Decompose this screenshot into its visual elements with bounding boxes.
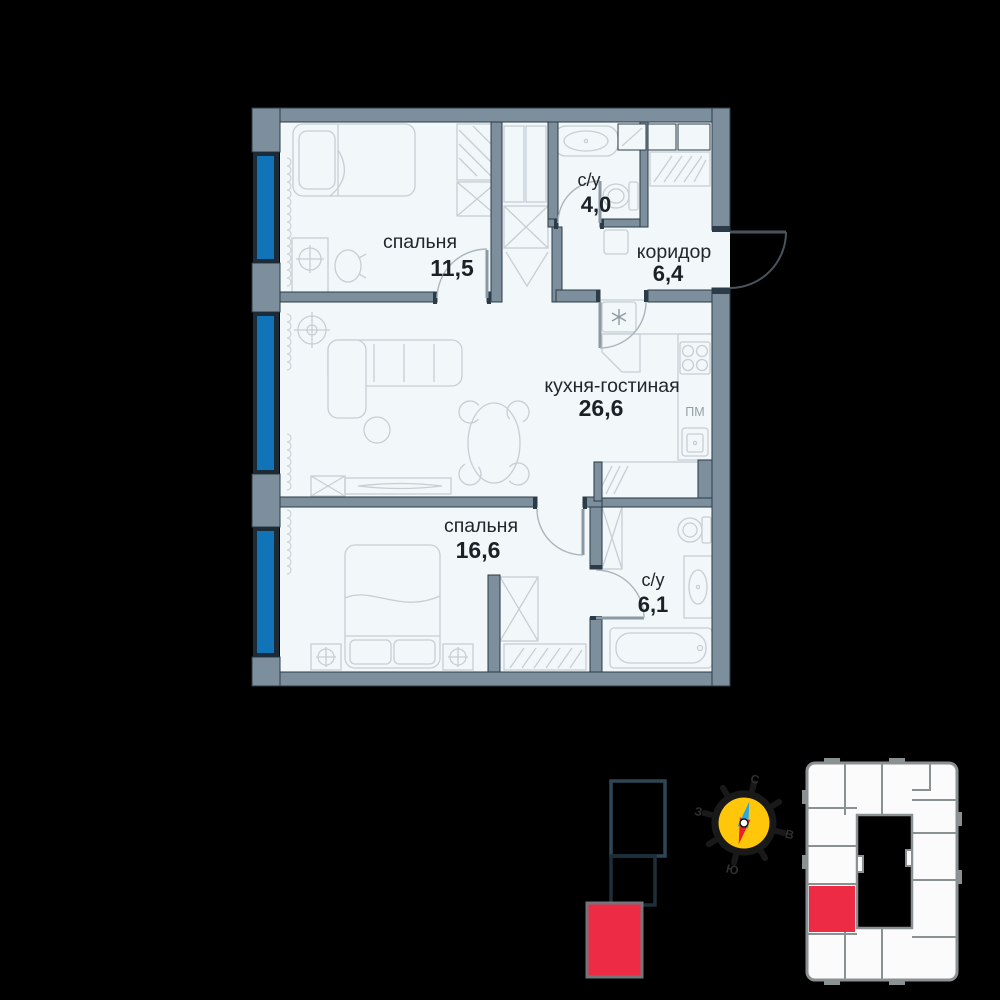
wall-bath1-left: [548, 122, 558, 227]
sofa-chaise: [328, 340, 366, 418]
room-area-bathroom-2: 6,1: [638, 592, 669, 617]
dishwasher-label: ПМ: [685, 405, 704, 419]
wall-right-upper: [712, 108, 730, 230]
window-glazing: [257, 156, 274, 259]
room-label-corridor: коридор: [637, 241, 712, 263]
facade-pier: [252, 263, 280, 312]
entrance-opening: [712, 230, 730, 288]
wall-bedroom2-stub: [488, 575, 500, 672]
wall-bottom: [252, 672, 730, 686]
wall-living-bedroom2: [280, 497, 537, 507]
floor-plate-diagram: [802, 758, 962, 985]
courtyard: [857, 815, 912, 928]
wall-top: [252, 108, 730, 122]
shaft: [648, 124, 676, 150]
room-label-kitchen-living: кухня-гостиная: [544, 375, 679, 397]
room-label-bathroom-2: с/у: [641, 570, 664, 590]
section-highlighted: [587, 903, 642, 977]
compass-north-label: С: [749, 771, 761, 787]
wall-right-lower: [712, 288, 730, 686]
wall-niche-left: [594, 462, 602, 501]
facade-windows: [253, 152, 279, 657]
courtyard-tab: [857, 856, 863, 872]
wall-corridor-kitchen: [556, 290, 600, 302]
room-area-kitchen-living: 26,6: [579, 395, 624, 421]
window-glazing: [257, 531, 274, 653]
section-outline-2: [611, 856, 655, 905]
room-label-bathroom-1: с/у: [577, 170, 600, 190]
wall-bath2-left-upper: [590, 507, 602, 569]
highlighted-unit: [809, 886, 855, 932]
shaft: [678, 124, 710, 150]
room-area-bedroom-2: 16,6: [456, 537, 501, 563]
room-area-bedroom-1: 11,5: [430, 255, 474, 281]
apartment: спальня 11,5 с/у 4,0 коридор 6,4 кухня-г…: [252, 108, 786, 686]
facade-pier: [252, 474, 280, 527]
compass-south-label: Ю: [725, 861, 740, 878]
wall-bedroom1-living: [280, 292, 437, 302]
floorplan-svg: спальня 11,5 с/у 4,0 коридор 6,4 кухня-г…: [0, 0, 1000, 1000]
room-label-bedroom-1: спальня: [383, 231, 457, 253]
facade-pier: [252, 108, 280, 152]
building-section-schematic: [587, 781, 665, 977]
floorplan-image: спальня 11,5 с/у 4,0 коридор 6,4 кухня-г…: [0, 0, 1000, 1000]
room-label-bedroom-2: спальня: [444, 515, 518, 537]
wall-corridor-kitchen: [648, 290, 712, 302]
ventilation-shafts: [618, 124, 710, 150]
wall-bedroom1-hall: [491, 122, 502, 302]
window-glazing: [257, 316, 274, 470]
section-outline-1: [611, 781, 665, 856]
compass-east-label: В: [784, 827, 796, 843]
compass-west-label: З: [693, 804, 704, 819]
room-area-corridor: 6,4: [653, 261, 684, 286]
room-area-bathroom-1: 4,0: [581, 192, 612, 217]
wall-bath2-left-lower: [590, 618, 602, 672]
courtyard-tab: [906, 850, 912, 866]
facade-pier: [252, 657, 280, 686]
entrance-door-swing: [730, 232, 786, 288]
compass: С В Ю З: [681, 760, 806, 889]
wall-bath2-top: [602, 498, 712, 507]
